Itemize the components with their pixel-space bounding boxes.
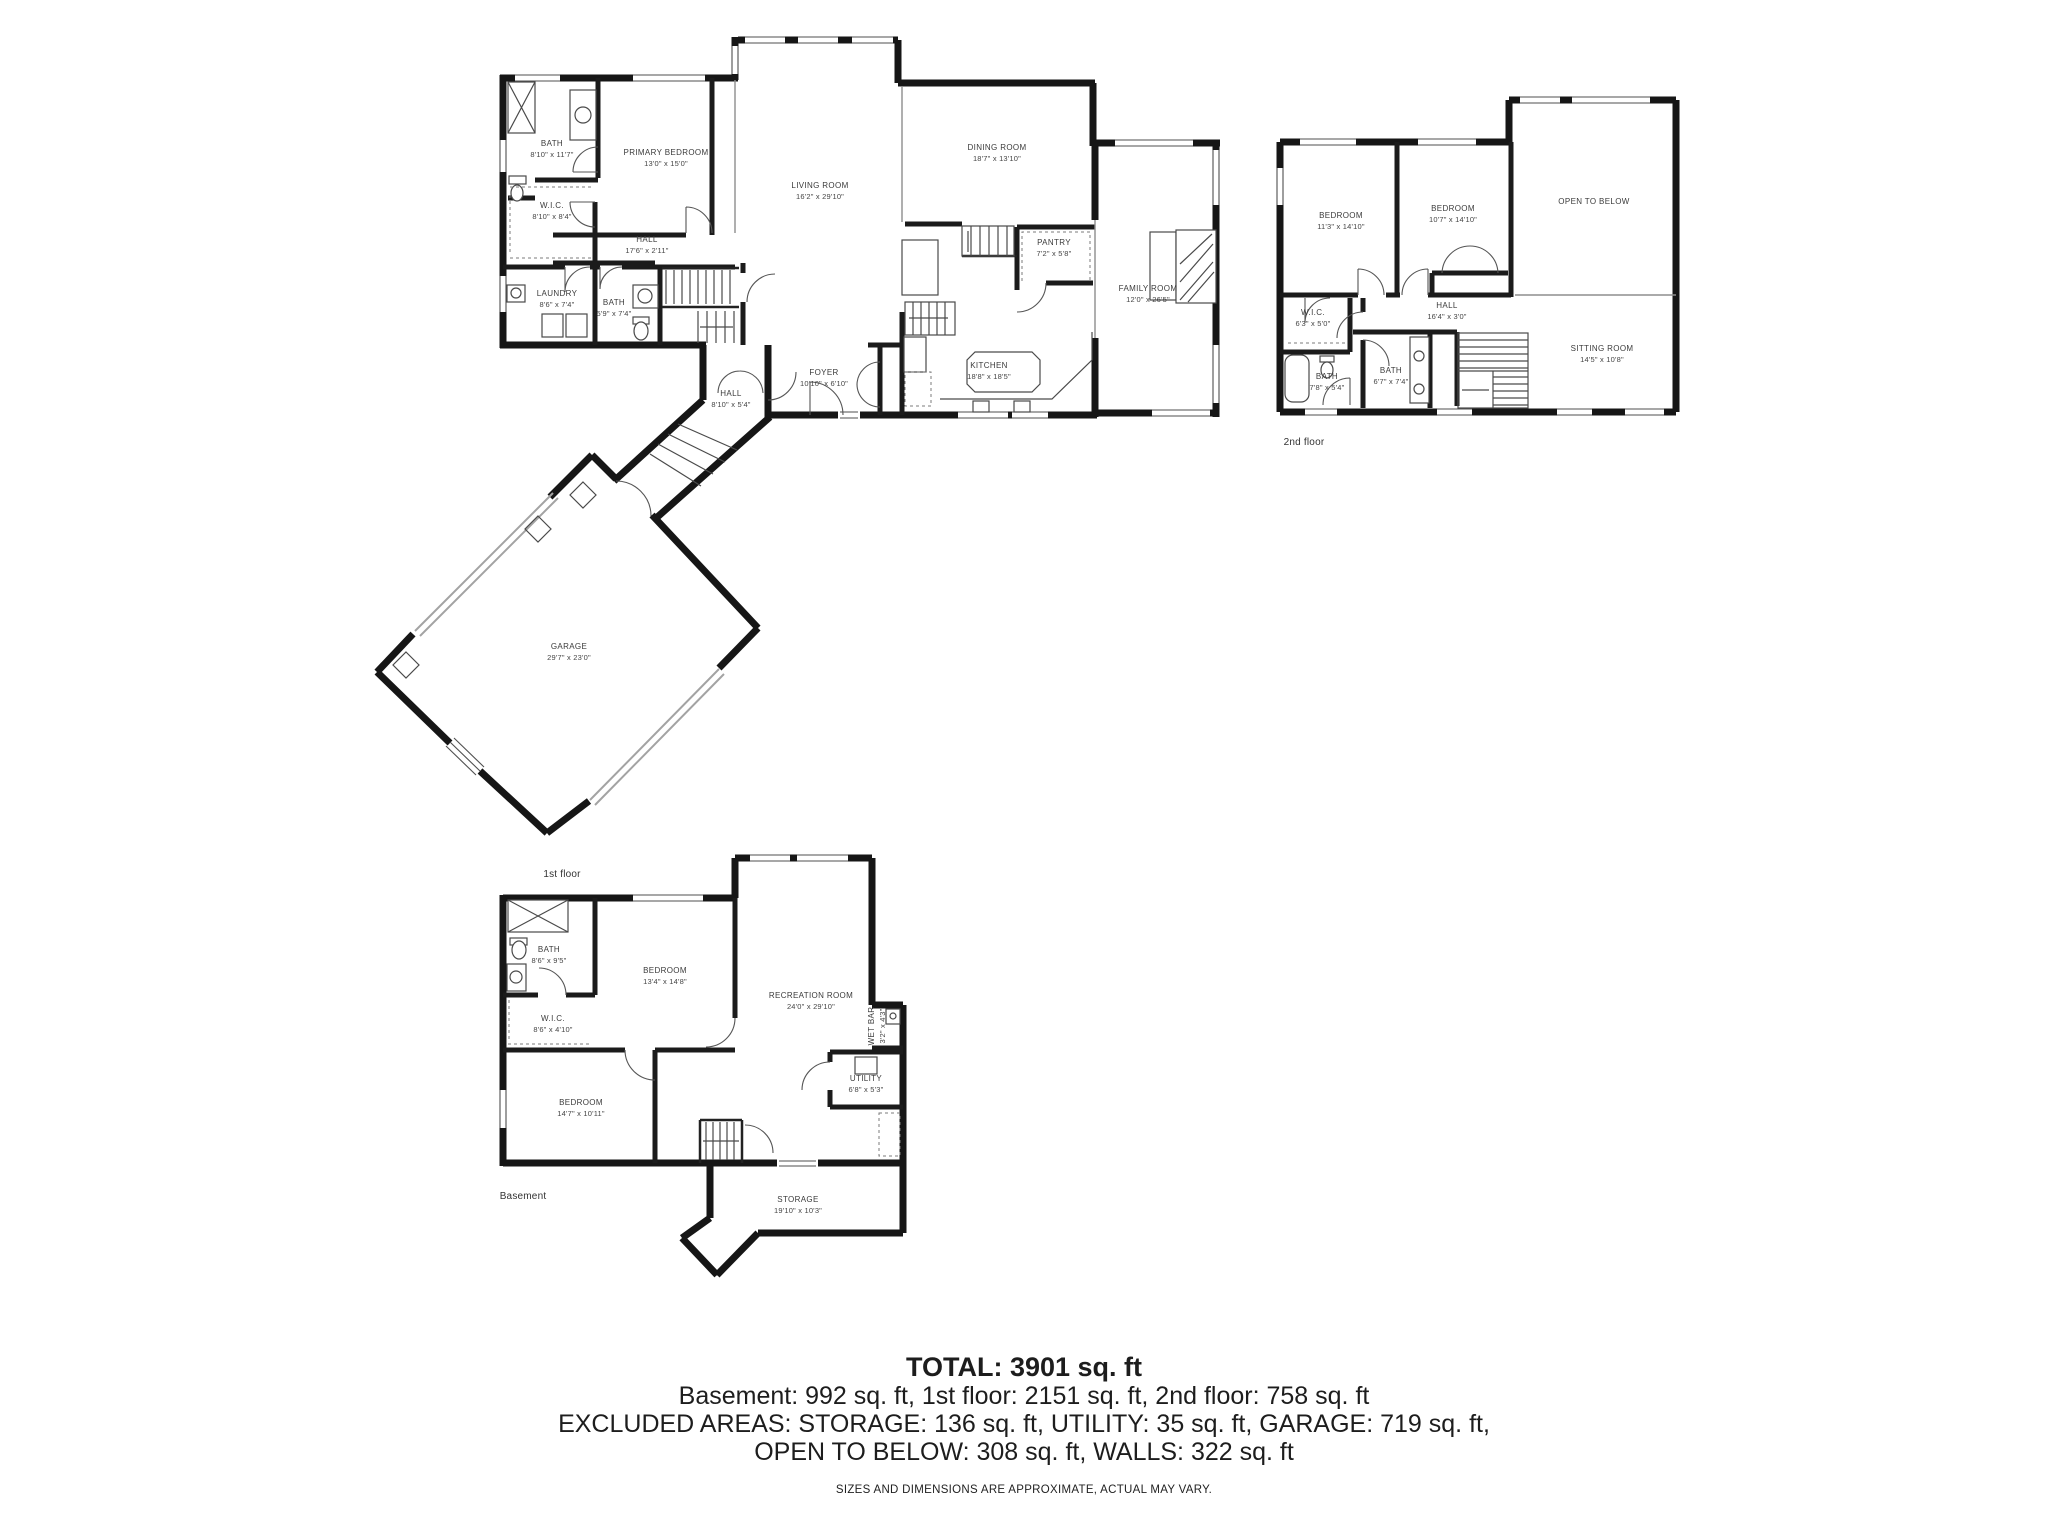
caption-first-floor: 1st floor (543, 869, 580, 880)
room-label-hall-2f: HALL16'4" x 3'0" (1427, 301, 1466, 322)
room-label-storage: STORAGE19'10" x 10'3" (774, 1195, 822, 1216)
kitchen-cabinet (902, 240, 938, 295)
floor-plan-drawing (0, 0, 2048, 1536)
basement-plan (497, 852, 905, 1275)
area-summary: TOTAL: 3901 sq. ft Basement: 992 sq. ft,… (0, 1352, 2048, 1466)
washer-icon (542, 314, 563, 337)
floor-areas-line: Basement: 992 sq. ft, 1st floor: 2151 sq… (0, 1382, 2048, 1410)
room-label-recreation-room: RECREATION ROOM24'0" x 29'10" (769, 991, 853, 1012)
room-label-wic-2f: W.I.C.6'3" x 5'0" (1296, 308, 1331, 329)
sink-icon (507, 964, 526, 991)
room-label-bath2-2f: BATH6'7" x 7'4" (1374, 366, 1409, 387)
room-label-living-room: LIVING ROOM16'2" x 29'10" (791, 181, 848, 202)
shower-icon (508, 82, 535, 133)
room-label-bath-1f: BATH8'10" x 11'7" (530, 139, 573, 160)
room-label-bedroom1-bsmt: BEDROOM13'4" x 14'8" (643, 966, 687, 987)
room-label-bath2-1f: BATH5'9" x 7'4" (597, 298, 632, 319)
room-label-wic-bsmt: W.I.C.8'6" x 4'10" (533, 1014, 572, 1035)
room-label-foyer: FOYER10'10" x 6'10" (800, 368, 848, 389)
caption-second-floor: 2nd floor (1284, 437, 1325, 448)
room-label-dining-room: DINING ROOM18'7" x 13'10" (968, 143, 1027, 164)
vanity-icon (570, 90, 596, 140)
room-label-hall2-1f: HALL8'10" x 5'4" (711, 389, 750, 410)
fridge-icon (904, 337, 926, 372)
room-label-sitting-room: SITTING ROOM14'5" x 10'8" (1571, 344, 1634, 365)
room-label-laundry: LAUNDRY8'6" x 7'4" (537, 289, 578, 310)
kitchen-counter (940, 332, 1092, 399)
caption-basement: Basement (500, 1191, 547, 1202)
room-label-bedroom1-2f: BEDROOM11'3" x 14'10" (1317, 211, 1365, 232)
room-label-family-room: FAMILY ROOM12'0" x 26'5" (1119, 284, 1178, 305)
stairs-icon (703, 1122, 739, 1160)
room-label-bedroom2-bsmt: BEDROOM14'7" x 10'11" (557, 1098, 605, 1119)
excluded-areas-line2: OPEN TO BELOW: 308 sq. ft, WALLS: 322 sq… (0, 1438, 2048, 1466)
total-area: TOTAL: 3901 sq. ft (0, 1352, 2048, 1382)
room-label-open-to-below: OPEN TO BELOW (1558, 197, 1629, 208)
disclaimer-text: SIZES AND DIMENSIONS ARE APPROXIMATE, AC… (0, 1484, 2048, 1496)
stairs-icon (1458, 333, 1528, 408)
first-floor-plan (497, 34, 1221, 520)
room-label-wic-1f: W.I.C.8'10" x 8'4" (532, 201, 571, 222)
floor-plan-page: BATH8'10" x 11'7" PRIMARY BEDROOM13'0" x… (0, 0, 2048, 1536)
room-label-utility: UTILITY6'8" x 5'3" (849, 1074, 884, 1095)
room-label-bath1-2f: BATH7'8" x 5'4" (1310, 372, 1345, 393)
bath2-fixtures (633, 285, 658, 340)
tub-icon (1285, 355, 1309, 402)
excluded-areas-line: EXCLUDED AREAS: STORAGE: 136 sq. ft, UTI… (0, 1410, 2048, 1438)
room-label-bath-bsmt: BATH8'6" x 9'5" (532, 945, 567, 966)
shower-icon (508, 900, 568, 932)
dryer-icon (566, 314, 587, 337)
laundry-sink-icon (507, 285, 525, 302)
room-label-bedroom2-2f: BEDROOM10'7" x 14'10" (1429, 204, 1477, 225)
room-label-primary-bedroom: PRIMARY BEDROOM13'0" x 15'0" (624, 148, 709, 169)
room-label-hall-1f: HALL17'6" x 2'11" (625, 235, 668, 256)
second-floor-plan (1274, 94, 1676, 417)
toilet-icon (510, 938, 527, 959)
room-label-wet-bar: WET BAR3'2" x 4'3" (867, 1007, 888, 1046)
double-vanity-icon (1410, 337, 1429, 403)
room-label-kitchen: KITCHEN18'8" x 18'5" (967, 361, 1011, 382)
room-label-garage: GARAGE29'7" x 23'0" (547, 642, 591, 663)
utility-equipment (855, 1057, 877, 1074)
room-label-pantry: PANTRY7'2" x 5'8" (1037, 238, 1072, 259)
wet-bar-sink-icon (886, 1009, 900, 1024)
